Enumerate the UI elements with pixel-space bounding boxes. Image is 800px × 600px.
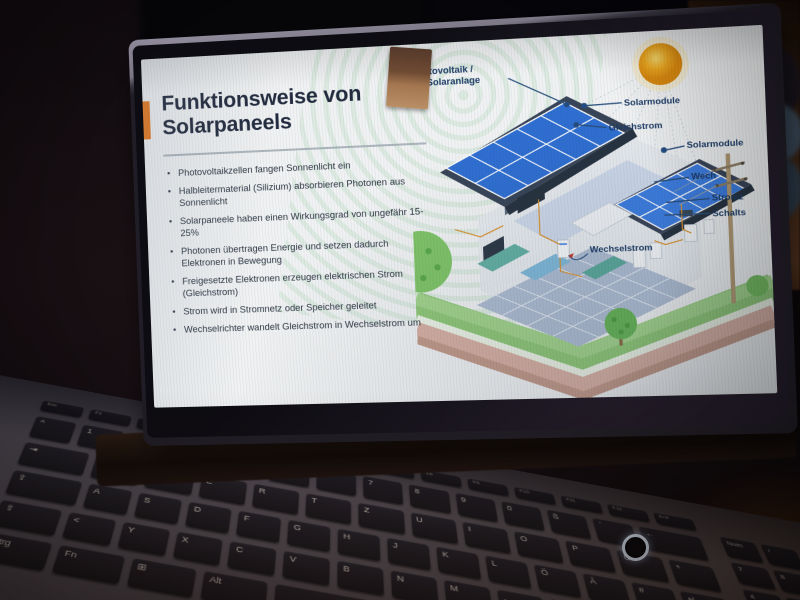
key-a[interactable]: A bbox=[83, 483, 133, 515]
solar-diagram: Photovoltaik / PV-Solaranlage Solarmodul… bbox=[406, 29, 777, 408]
bullet-item: Halbleitermaterial (Silizium) absorbiere… bbox=[168, 175, 426, 210]
bullet-list: Photovoltaikzellen fangen Sonnenlicht ei… bbox=[167, 157, 431, 343]
key-u[interactable]: U bbox=[410, 512, 457, 544]
key-8[interactable]: 8 bbox=[409, 484, 451, 513]
key-entf[interactable]: Entf bbox=[653, 512, 697, 531]
bullet-item: Photonen übertragen Energie und setzen d… bbox=[170, 237, 428, 271]
slide-accent-bar bbox=[143, 101, 151, 139]
key-y[interactable]: Y bbox=[117, 522, 169, 557]
key-strg[interactable]: Strg bbox=[0, 532, 53, 571]
key-fn[interactable]: Fn bbox=[52, 545, 125, 585]
key-f10[interactable]: F10 bbox=[514, 487, 556, 505]
key-o[interactable]: O bbox=[514, 531, 564, 563]
key-⊞[interactable]: ⊞ bbox=[126, 558, 196, 598]
bullet-item: Wechselrichter wandelt Gleichstrom in We… bbox=[173, 316, 431, 336]
label-schaltschrank-cut: Schalts bbox=[712, 207, 746, 219]
key-k[interactable]: K bbox=[436, 546, 481, 579]
key-ä[interactable]: Ä bbox=[583, 573, 632, 600]
key-v[interactable]: V bbox=[283, 551, 330, 586]
webcam-tape bbox=[386, 47, 432, 110]
key-z[interactable]: Z bbox=[359, 503, 405, 535]
key-0[interactable]: 0 bbox=[501, 501, 545, 531]
label-stromzaehler-cut: Stromz bbox=[712, 191, 744, 203]
key-ö[interactable]: Ö bbox=[534, 564, 582, 598]
key-⇧[interactable]: ⇧ bbox=[0, 500, 62, 537]
key-f[interactable]: F bbox=[236, 511, 281, 543]
key-^[interactable]: ^ bbox=[29, 416, 77, 444]
bullet-item: Strom wird in Stromnetz oder Speicher ge… bbox=[172, 298, 430, 318]
key-⇪[interactable]: ⇪ bbox=[5, 470, 82, 506]
utility-pole bbox=[726, 153, 736, 303]
key-+[interactable]: + bbox=[668, 559, 722, 592]
bullet-item: Solarpaneele haben einen Wirkungsgrad vo… bbox=[169, 206, 427, 241]
key-l[interactable]: L bbox=[485, 555, 531, 589]
label-wechselrichter-cut: Wech bbox=[691, 170, 716, 182]
key-s[interactable]: S bbox=[134, 492, 182, 524]
key-f12[interactable]: F12 bbox=[607, 504, 650, 523]
key-,[interactable]: , bbox=[497, 589, 548, 600]
key-g[interactable]: G bbox=[287, 520, 330, 553]
laptop-lid: Funktionsweise von Solarpaneels Photovol… bbox=[128, 3, 798, 446]
key-<[interactable]: < bbox=[62, 512, 116, 546]
key-f1[interactable]: F1 bbox=[88, 409, 132, 427]
key-c[interactable]: C bbox=[228, 541, 277, 576]
key-p[interactable]: P bbox=[565, 540, 616, 573]
key-8[interactable]: 8 bbox=[772, 570, 800, 598]
key-m[interactable]: M bbox=[444, 580, 493, 600]
key-#[interactable]: # bbox=[631, 582, 681, 600]
key-n[interactable]: N bbox=[391, 570, 439, 600]
key-7[interactable]: 7 bbox=[730, 562, 776, 590]
key-esc[interactable]: Esc bbox=[40, 400, 85, 418]
inverter-box bbox=[557, 240, 569, 258]
switch-box bbox=[704, 220, 714, 234]
key-f11[interactable]: F11 bbox=[560, 495, 603, 513]
bullet-item: Freigesetzte Elektronen erzeugen elektri… bbox=[171, 267, 429, 300]
power-button[interactable] bbox=[622, 534, 649, 561]
key-9[interactable]: 9 bbox=[455, 493, 498, 523]
key-i[interactable]: I bbox=[462, 522, 511, 554]
key-j[interactable]: J bbox=[387, 537, 431, 570]
screen-bezel: Funktionsweise von Solarpaneels Photovol… bbox=[132, 9, 789, 438]
key-f9[interactable]: F9 bbox=[467, 478, 509, 496]
key-↵[interactable]: ↵ bbox=[680, 591, 736, 600]
key-r[interactable]: R bbox=[252, 484, 299, 515]
key-x[interactable]: X bbox=[172, 531, 223, 566]
key-num[interactable]: Num bbox=[719, 536, 763, 563]
key-d[interactable]: D bbox=[185, 502, 232, 534]
key-ß[interactable]: ß bbox=[547, 509, 592, 539]
photo-scene: EscF1F2F3F4F5F6F7F8F9F10F11F12Entf^12345… bbox=[0, 0, 800, 600]
key-alt[interactable]: Alt bbox=[200, 571, 268, 600]
key-b[interactable]: B bbox=[337, 560, 384, 595]
key-t[interactable]: T bbox=[305, 493, 351, 525]
key-/[interactable]: / bbox=[760, 544, 800, 571]
key-h[interactable]: H bbox=[338, 529, 381, 562]
key-7[interactable]: 7 bbox=[363, 476, 403, 505]
keyboard-numpad: Num/*-789+456+123↵0,↵ bbox=[719, 536, 800, 600]
key-⇥[interactable]: ⇥ bbox=[17, 442, 89, 476]
presentation-slide: Funktionsweise von Solarpaneels Photovol… bbox=[141, 25, 777, 408]
